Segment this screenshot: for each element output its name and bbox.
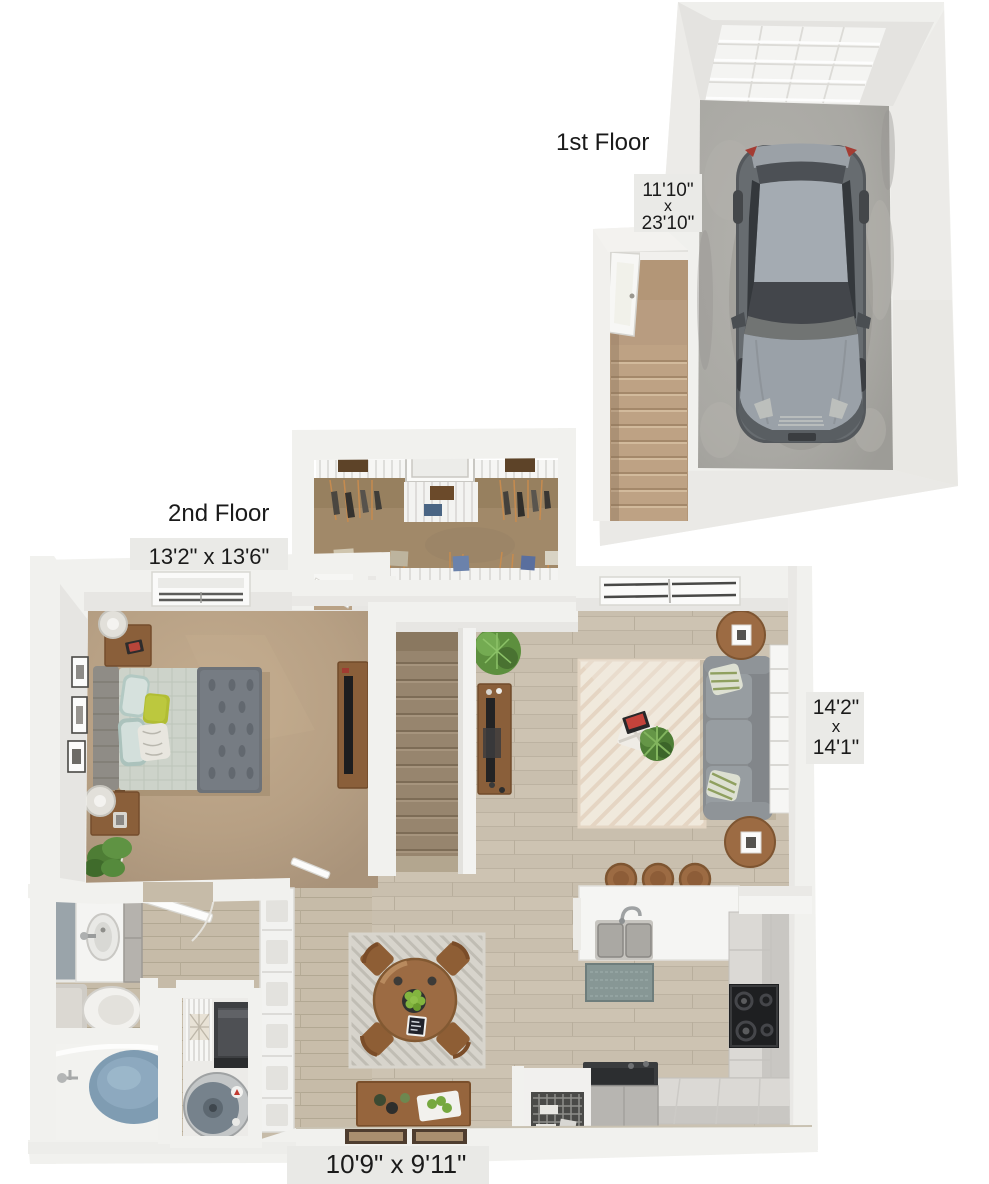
svg-text:1st Floor: 1st Floor [556,129,649,156]
svg-text:14'2": 14'2" [813,696,860,719]
svg-text:14'1": 14'1" [813,736,860,759]
svg-text:23'10": 23'10" [642,213,695,234]
svg-text:10'9" x 9'11": 10'9" x 9'11" [326,1149,467,1179]
svg-text:2nd Floor: 2nd Floor [168,500,269,527]
svg-text:x: x [832,717,841,736]
svg-text:13'2" x 13'6": 13'2" x 13'6" [149,544,270,569]
